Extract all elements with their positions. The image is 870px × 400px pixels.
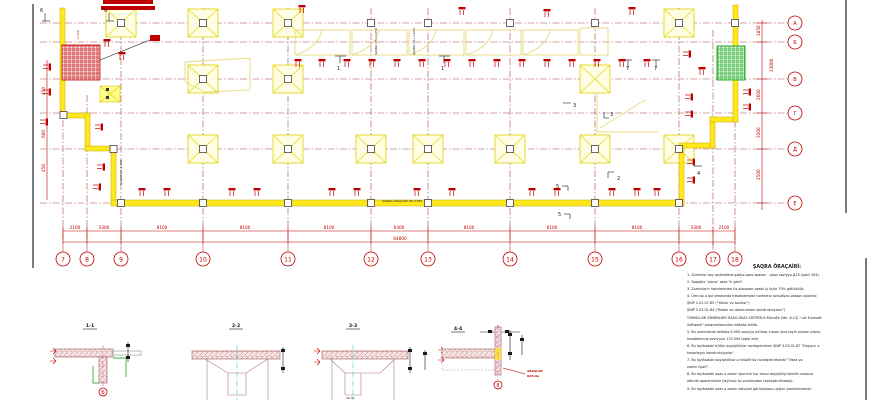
section-marker-6: 6	[40, 8, 43, 14]
section-marker-4: 4	[697, 171, 700, 177]
section-detail-4-4: 4-4 ƏSASLAR Q25-8a 8	[438, 325, 543, 389]
dim-label: 1850	[756, 25, 761, 36]
axis-bubble: Е	[793, 201, 796, 207]
drawing-sheet: 2100 3300 8100 8100 8100 6400 8100 8100 …	[0, 0, 870, 400]
bottom-dimensions: 2100 3300 8100 8100 8100 6400 8100 8100 …	[63, 225, 735, 245]
axis-bubble: 11	[284, 257, 292, 264]
section-marker-7: 7	[654, 66, 657, 72]
dim-label: 8100	[157, 225, 168, 230]
section-marker-1: 1	[337, 66, 340, 72]
note-line: 7. Bu layihədəki dəyişikliklər ə müəllif…	[687, 357, 867, 364]
note-line: ŞNİP 2.03.01-84 ("Beton və dəmir-beton k…	[687, 307, 867, 314]
detail-highlight	[100, 86, 120, 102]
axis-bubble: В	[793, 77, 797, 83]
wall-label: ŞAQRA Q5-0,350	[119, 160, 123, 185]
axis-bubble: 13	[424, 257, 432, 264]
section-marker-5: 5	[558, 212, 561, 218]
axis-bubble: 8	[496, 383, 499, 389]
axis-bubble: Б	[101, 390, 105, 396]
axis-bubbles-bottom: 7 8 9 10 11 12 13 14 15 16 17 18	[56, 252, 742, 266]
note-line: 2. Dəqiqliə "əlavə" əsas "k şəkli".	[687, 279, 867, 286]
dim-label: 3300	[756, 127, 761, 138]
hatched-zone-green	[717, 46, 745, 80]
note-line: altında aparılmalıdır (layihəçi ilə əvvə…	[687, 378, 867, 385]
section-marker-3: 3	[573, 103, 576, 109]
note-line: 8. Bu layihədəki əsas ə zəmin işlərinin …	[687, 371, 867, 378]
axis-bubble: 12	[367, 257, 375, 264]
section-detail-1-1: 1-1 Б	[50, 323, 141, 396]
note-line: 1. Zəminlər bəy aşılmalarla şəkilə-əsas …	[687, 272, 867, 279]
column-footings	[106, 9, 694, 163]
dim-label: 8100	[547, 225, 558, 230]
note-line: 4. Ümr-də ə qurulmasında hesablamalar no…	[687, 293, 867, 300]
right-dimensions: 1850 23000 2600 3300 2500	[756, 20, 774, 210]
foundation-note: ƏSASLAR	[527, 369, 543, 373]
dim-label: 8100	[324, 225, 335, 230]
section-marker-5: 5	[556, 184, 559, 190]
section-title: 3-3	[349, 323, 357, 329]
axis-bubble: 18	[731, 257, 739, 264]
section-detail-3-3: 3-3 30 30	[314, 323, 427, 400]
axis-bubbles-right: А Б В Г Д Е	[788, 16, 802, 210]
note-line: 6. Bu layihədəki bütün dəyişikliklər raz…	[687, 343, 867, 350]
plan-text-labels: ŞAQRA-ÖRAÇAİRİ 05-0,350 ŞAQRA Q5+3,950 Ş…	[119, 28, 422, 203]
beam-label: ŞAQRA Q5+3,950	[374, 28, 378, 55]
axis-bubble: Б	[793, 40, 797, 46]
axis-bubble: Г	[793, 111, 796, 117]
dim-label: 2100	[719, 225, 730, 230]
axis-bubble: 17	[709, 257, 717, 264]
axis-bubble: Д	[793, 147, 797, 153]
dim-total: 64800	[393, 236, 407, 241]
note-line: 3. Zəminlərin hazırlanması ilə əlaqədar …	[687, 286, 867, 293]
note-line: hesablanmış səviyyəsi 170.300 təşkil edi…	[687, 336, 867, 343]
section-title: 4-4	[454, 326, 462, 332]
dim-label: 2100	[70, 225, 81, 230]
note-line: TƏMƏLLƏR ZƏMİNLƏRİ ƏSAS-ƏSAS SİSTEMLƏ Mi…	[687, 315, 867, 322]
note-line: zəmin işləri".	[687, 364, 867, 371]
note-line: hasarlayıcı konstruksiyalar"	[687, 350, 867, 357]
section-detail-2-2: 2-2	[192, 323, 285, 400]
dim-label: 2600	[756, 89, 761, 100]
axis-bubble: 9	[119, 257, 123, 264]
axis-bubble: 15	[591, 257, 599, 264]
dim-label: 450	[41, 87, 46, 95]
dim-label: 8100	[464, 225, 475, 230]
dim-label: 6400	[394, 225, 405, 230]
beam-label: ŞAQRA-ÖRAÇAİRİ 05-0,350	[382, 198, 422, 203]
dim-label: 3300	[691, 225, 702, 230]
beam-label: ŞAQRA Q5+3,950	[412, 28, 416, 55]
dim-label: 3300	[99, 225, 110, 230]
section-marker-7: 7	[626, 66, 629, 72]
section-title: 1-1	[86, 323, 94, 329]
section-marker-6: 6	[104, 8, 107, 14]
dim-label: 8100	[240, 225, 251, 230]
axis-bubble: А	[793, 21, 797, 27]
capital-outlines	[100, 28, 658, 132]
dim-label: 600	[41, 130, 46, 138]
note-line: ŞNİP 2.01.07-85 ("Yüklər və təsirlər")	[687, 300, 867, 307]
notes-heading: ŞAQRA ÖRAÇAİRİ:	[687, 265, 867, 270]
axis-bubble: 14	[506, 257, 514, 264]
note-line: Software" proqramlarından istifadə edili…	[687, 322, 867, 329]
note-line: 5. Bu zəminlərdə istifadə 0.000 səviyyə …	[687, 329, 867, 336]
elevation-label: -3,150	[76, 30, 80, 40]
dim-label: 30 30	[346, 396, 355, 400]
note-line: 9. Bu layihədəki əsas ə zəmin sahələri g…	[687, 386, 867, 393]
section-marker-3: 3	[610, 112, 613, 118]
section-marker-2: 2	[617, 176, 620, 182]
general-notes: ŞAQRA ÖRAÇAİRİ: 1. Zəminlər bəy aşılmala…	[687, 265, 867, 393]
dim-label: 450	[41, 164, 46, 172]
axis-bubble: 8	[85, 257, 89, 264]
axis-bubble: 10	[199, 257, 207, 264]
axis-bubble: 16	[675, 257, 683, 264]
dim-label: 8100	[632, 225, 643, 230]
axis-bubble: 7	[61, 257, 65, 264]
dim-label: 2500	[756, 169, 761, 180]
section-marker-1: 1	[441, 66, 444, 72]
foundation-note: Q25-8a	[527, 374, 539, 378]
dim-label: 23000	[769, 58, 774, 72]
section-title: 2-2	[232, 323, 240, 329]
